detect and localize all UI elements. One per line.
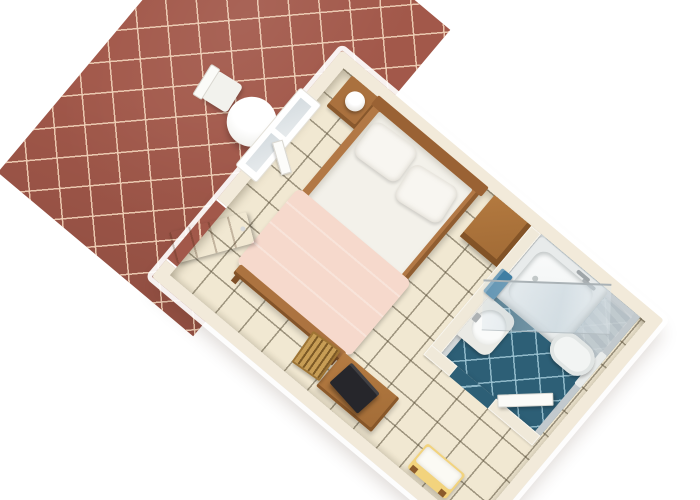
floorplan-canvas [0,0,700,500]
shower-glass-screen [482,279,612,334]
bathroom-door [497,393,553,408]
bedside-lamp [341,87,369,115]
door-knob [240,226,246,232]
